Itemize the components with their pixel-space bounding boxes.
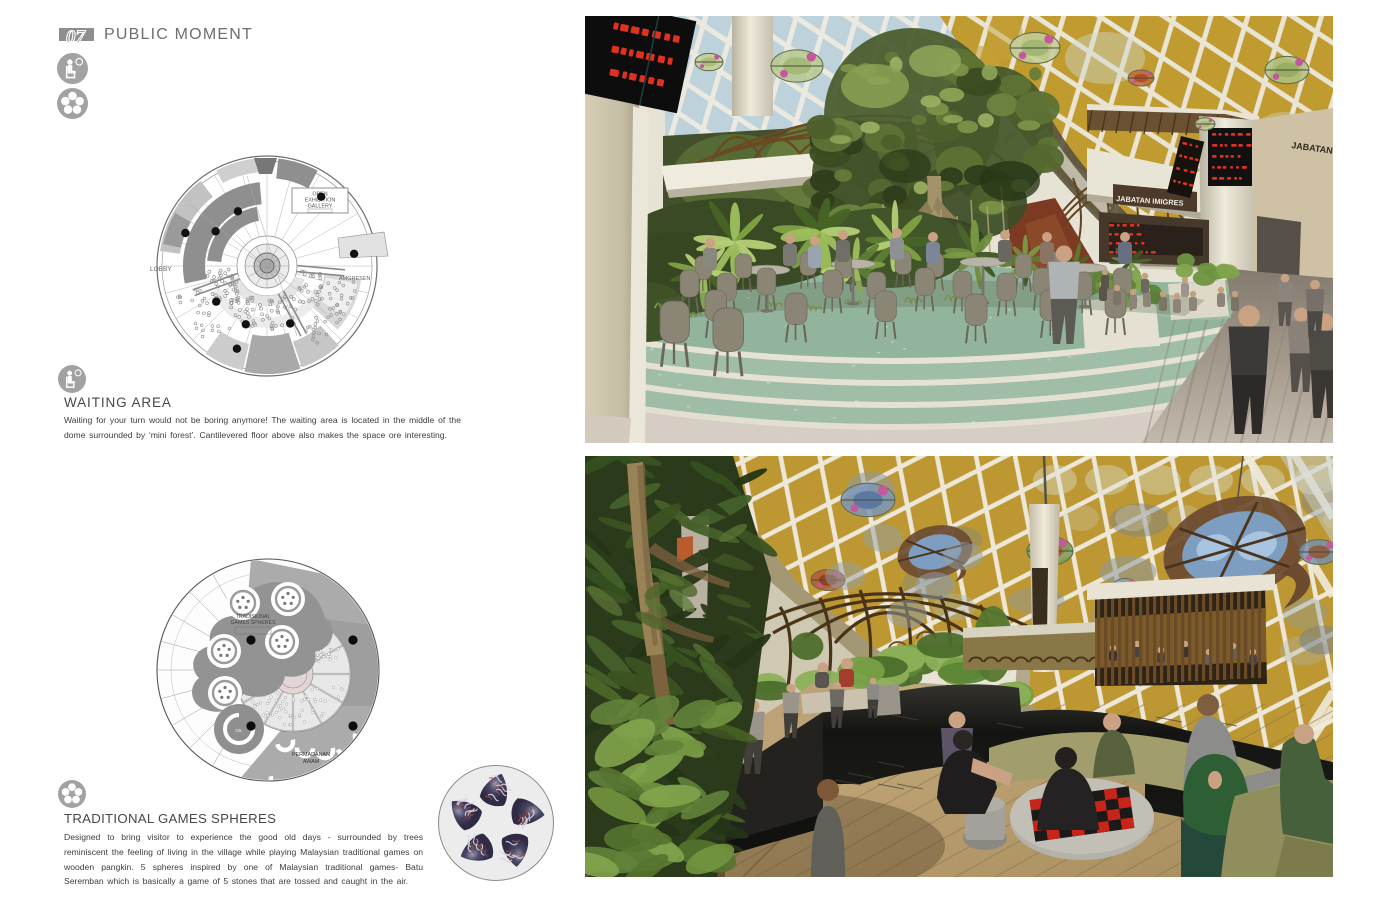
svg-text:AMGRESEN: AMGRESEN [339, 276, 371, 282]
svg-text:AWAM: AWAM [303, 759, 320, 765]
svg-text:GAMES SPHERES: GAMES SPHERES [231, 620, 277, 626]
svg-text:07: 07 [66, 27, 87, 48]
svg-text:PERMADANAN: PERMADANAN [292, 752, 330, 758]
svg-text:OIL: OIL [235, 728, 243, 733]
svg-text:GALLERY: GALLERY [308, 204, 333, 210]
svg-text:LOBBY: LOBBY [150, 266, 172, 273]
